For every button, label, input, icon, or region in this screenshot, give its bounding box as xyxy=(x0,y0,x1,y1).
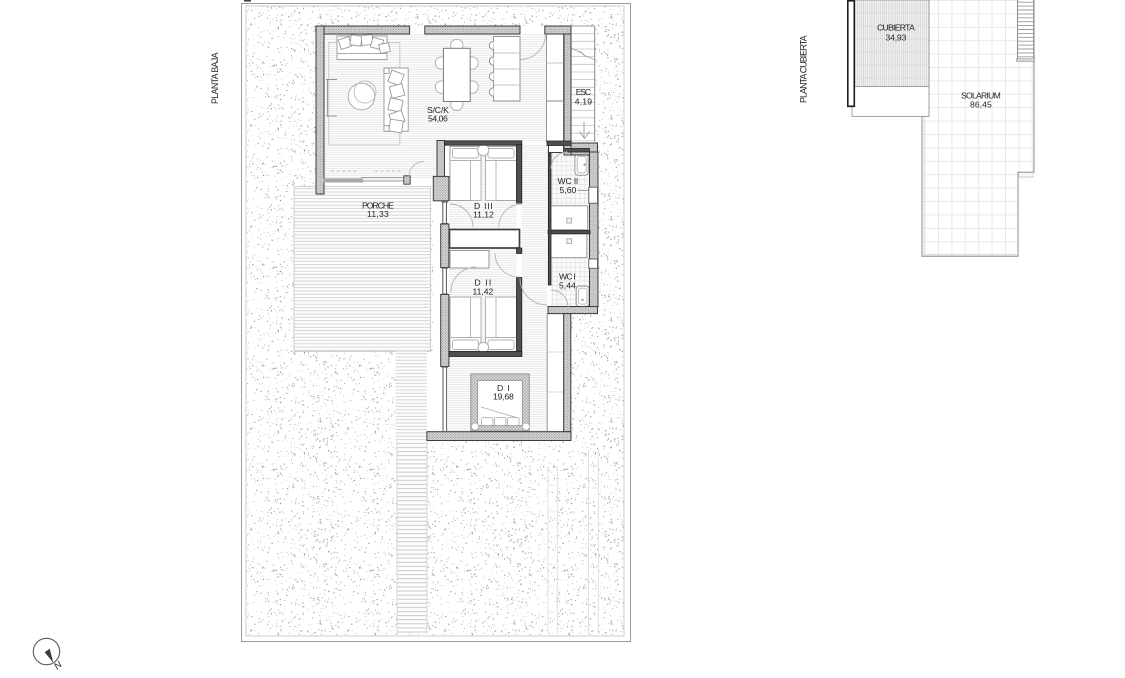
svg-text:34,93: 34,93 xyxy=(886,33,907,43)
svg-text:19,68: 19,68 xyxy=(493,392,514,402)
svg-text:11,33: 11,33 xyxy=(367,209,389,219)
svg-text:4,19: 4,19 xyxy=(575,97,593,107)
svg-text:86,45: 86,45 xyxy=(970,100,992,110)
svg-text:PLANTA BAJA: PLANTA BAJA xyxy=(210,52,220,104)
svg-text:54,06: 54,06 xyxy=(428,114,448,124)
svg-text:CUBIERTA: CUBIERTA xyxy=(877,23,915,33)
svg-text:11,42: 11,42 xyxy=(473,287,494,297)
svg-text:ESC: ESC xyxy=(576,87,592,97)
svg-text:11,12: 11,12 xyxy=(473,209,494,219)
svg-text:5,44: 5,44 xyxy=(559,281,576,291)
svg-text:PLANTA CUBIERTA: PLANTA CUBIERTA xyxy=(799,35,809,103)
svg-text:5,60: 5,60 xyxy=(560,185,577,195)
